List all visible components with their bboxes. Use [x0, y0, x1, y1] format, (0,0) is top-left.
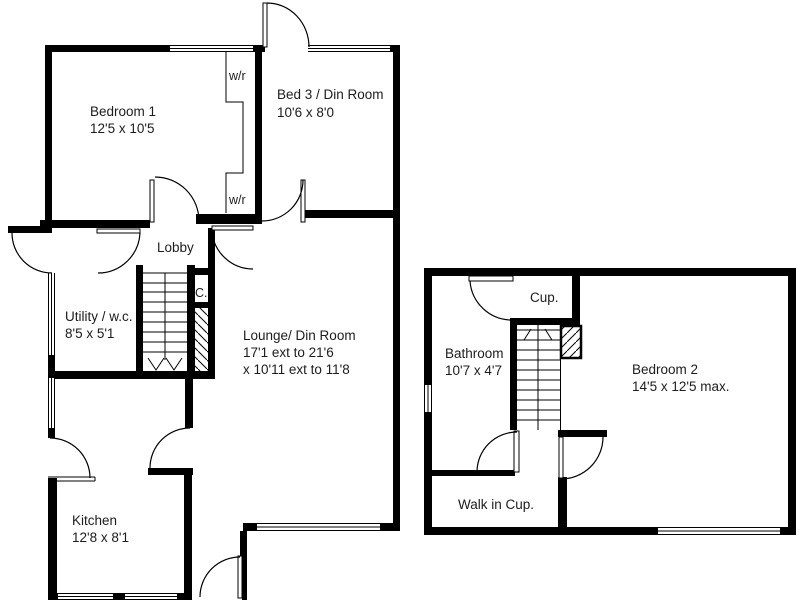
room-dims-lounge: 17'1 ext to 21'6 — [243, 345, 334, 360]
cupboard-label: C. — [195, 286, 208, 300]
room-label-utility: Utility / w.c. — [65, 309, 133, 324]
lobby-right-door — [212, 226, 253, 269]
window — [125, 593, 177, 600]
window — [308, 45, 390, 52]
first-floor-walls — [424, 268, 796, 535]
lobby-left-door — [97, 229, 140, 273]
ground-floor-plan: Bedroom 1 12'5 x 10'5 Bed 3 / Din Room 1… — [8, 3, 400, 600]
floor-plan: Bedroom 1 12'5 x 10'5 Bed 3 / Din Room 1… — [0, 0, 800, 609]
ground-floor-labels: Bedroom 1 12'5 x 10'5 Bed 3 / Din Room 1… — [65, 69, 384, 545]
wardrobe-label-bottom: w/r — [228, 193, 246, 207]
room-dims-utility: 8'5 x 5'1 — [65, 326, 114, 341]
understairs-hatch — [195, 308, 208, 371]
first-floor-stairs — [517, 325, 561, 430]
window — [48, 378, 55, 428]
floor-plan-svg: Bedroom 1 12'5 x 10'5 Bed 3 / Din Room 1… — [0, 0, 800, 609]
room-label-lounge: Lounge/ Din Room — [243, 328, 356, 343]
bedroom1-door — [150, 177, 199, 222]
room-label-bedroom1: Bedroom 1 — [90, 104, 156, 119]
porch-door — [200, 556, 242, 598]
room-dims2-lounge: x 10'11 ext to 11'8 — [243, 362, 350, 377]
room-label-kitchen: Kitchen — [72, 513, 117, 528]
window — [48, 273, 55, 355]
window — [658, 527, 780, 535]
bedroom2-door — [559, 437, 603, 479]
room-dims-bedroom1: 12'5 x 10'5 — [90, 121, 154, 136]
first-floor-plan: Cup. Bathroom 10'7 x 4'7 Bedroom 2 14'5 … — [424, 268, 796, 535]
bathroom-door — [477, 431, 519, 472]
first-floor-windows — [424, 385, 780, 535]
room-dims-bed3: 10'6 x 8'0 — [277, 105, 334, 120]
wardrobe-label-top: w/r — [228, 69, 246, 83]
room-dims-bedroom2: 14'5 x 12'5 max. — [632, 379, 729, 394]
room-label-bed3: Bed 3 / Din Room — [277, 87, 384, 102]
utility-kitchen-door — [50, 438, 90, 478]
room-label-bedroom2: Bedroom 2 — [632, 362, 698, 377]
room-label-cup: Cup. — [530, 290, 559, 305]
stair-hatch — [561, 326, 581, 358]
ground-floor-stairs — [143, 273, 187, 370]
room-dims-bathroom: 10'7 x 4'7 — [445, 363, 502, 378]
room-label-lobby: Lobby — [157, 240, 194, 255]
front-door — [263, 3, 309, 47]
room-dims-kitchen: 12'8 x 8'1 — [72, 530, 129, 545]
window — [257, 523, 380, 531]
side-door — [12, 233, 52, 273]
window — [58, 593, 113, 600]
bed3-door — [262, 180, 305, 222]
cupboard-door — [469, 276, 513, 320]
first-floor-labels: Cup. Bathroom 10'7 x 4'7 Bedroom 2 14'5 … — [445, 290, 729, 512]
room-label-bathroom: Bathroom — [445, 346, 504, 361]
lounge-kitchen-door — [150, 428, 190, 468]
room-label-walkin-cup: Walk in Cup. — [458, 497, 534, 512]
window — [424, 385, 432, 412]
window — [170, 45, 253, 52]
